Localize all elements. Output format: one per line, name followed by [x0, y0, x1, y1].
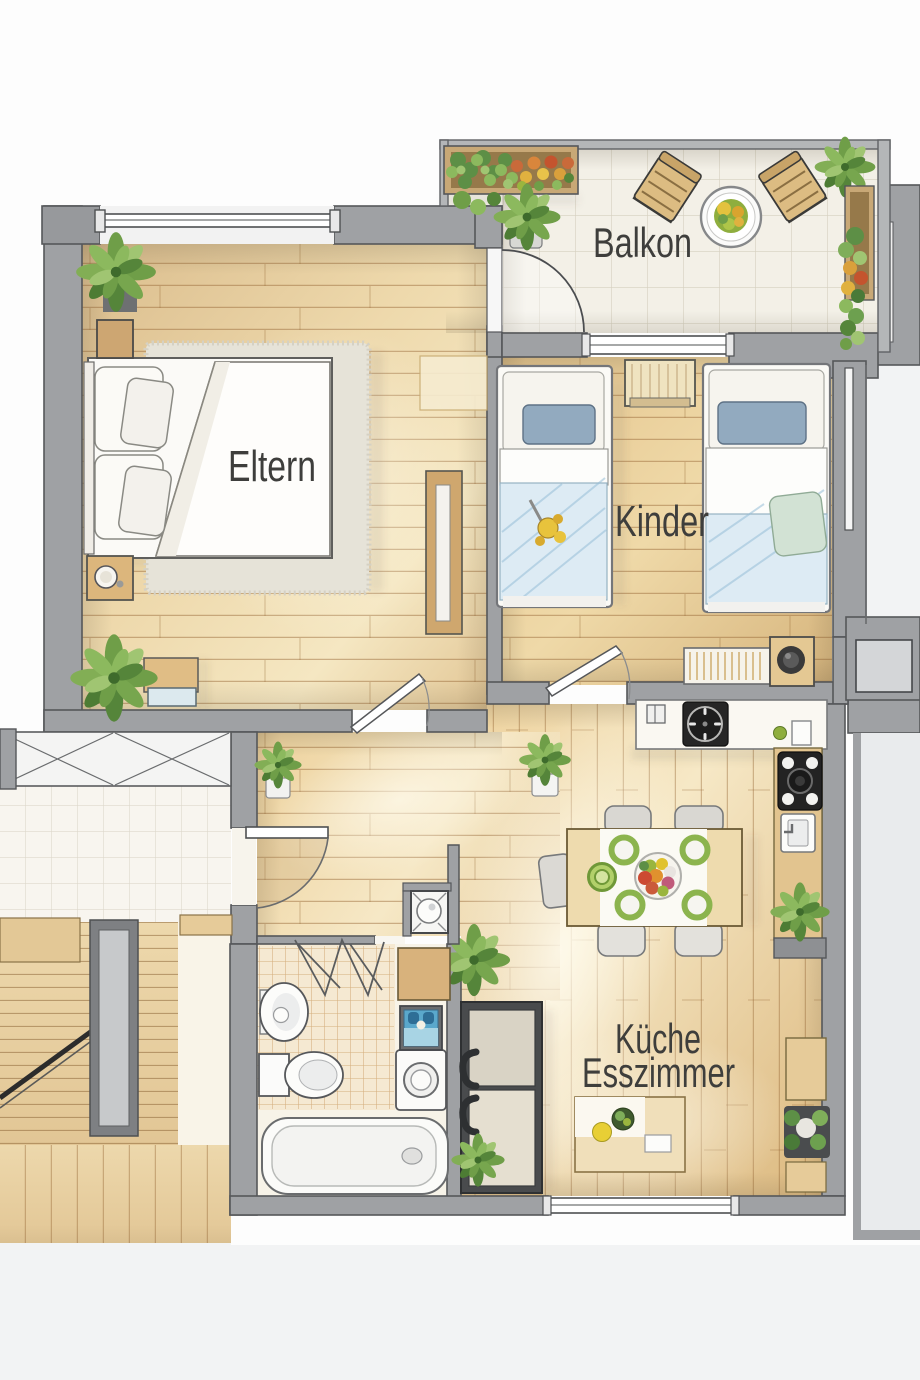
svg-text:Esszimmer: Esszimmer	[582, 1049, 735, 1096]
svg-text:Eltern: Eltern	[228, 442, 316, 491]
svg-text:Balkon: Balkon	[593, 219, 692, 266]
svg-text:Kinder: Kinder	[615, 497, 709, 546]
